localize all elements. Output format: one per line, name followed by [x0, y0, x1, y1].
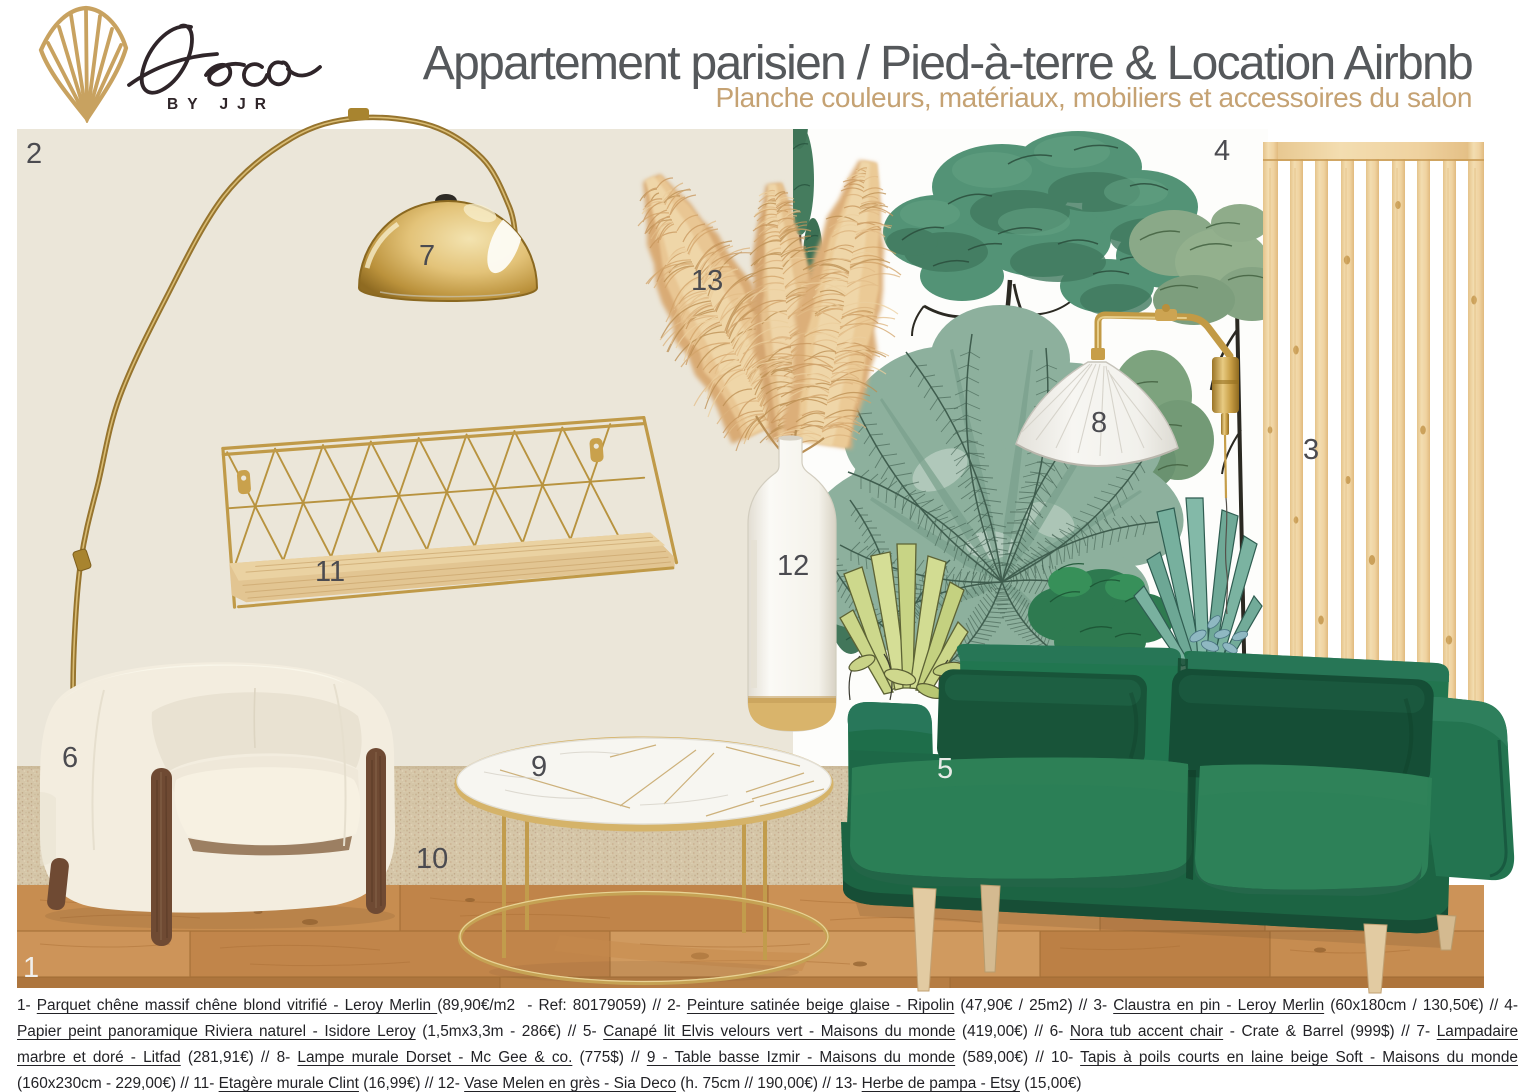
svg-text:2: 2 [26, 138, 42, 170]
svg-text:3: 3 [1303, 434, 1319, 466]
svg-text:11: 11 [315, 556, 345, 588]
svg-text:7: 7 [419, 240, 435, 272]
svg-text:BY JJR: BY JJR [167, 96, 275, 113]
svg-text:6: 6 [62, 742, 78, 774]
svg-text:1: 1 [23, 952, 39, 984]
svg-text:5: 5 [937, 753, 953, 785]
svg-text:8: 8 [1091, 407, 1107, 439]
svg-text:13: 13 [691, 265, 723, 297]
svg-text:12: 12 [777, 550, 809, 582]
svg-text:9: 9 [531, 751, 547, 783]
svg-text:10: 10 [416, 843, 448, 875]
svg-text:4: 4 [1214, 135, 1230, 167]
